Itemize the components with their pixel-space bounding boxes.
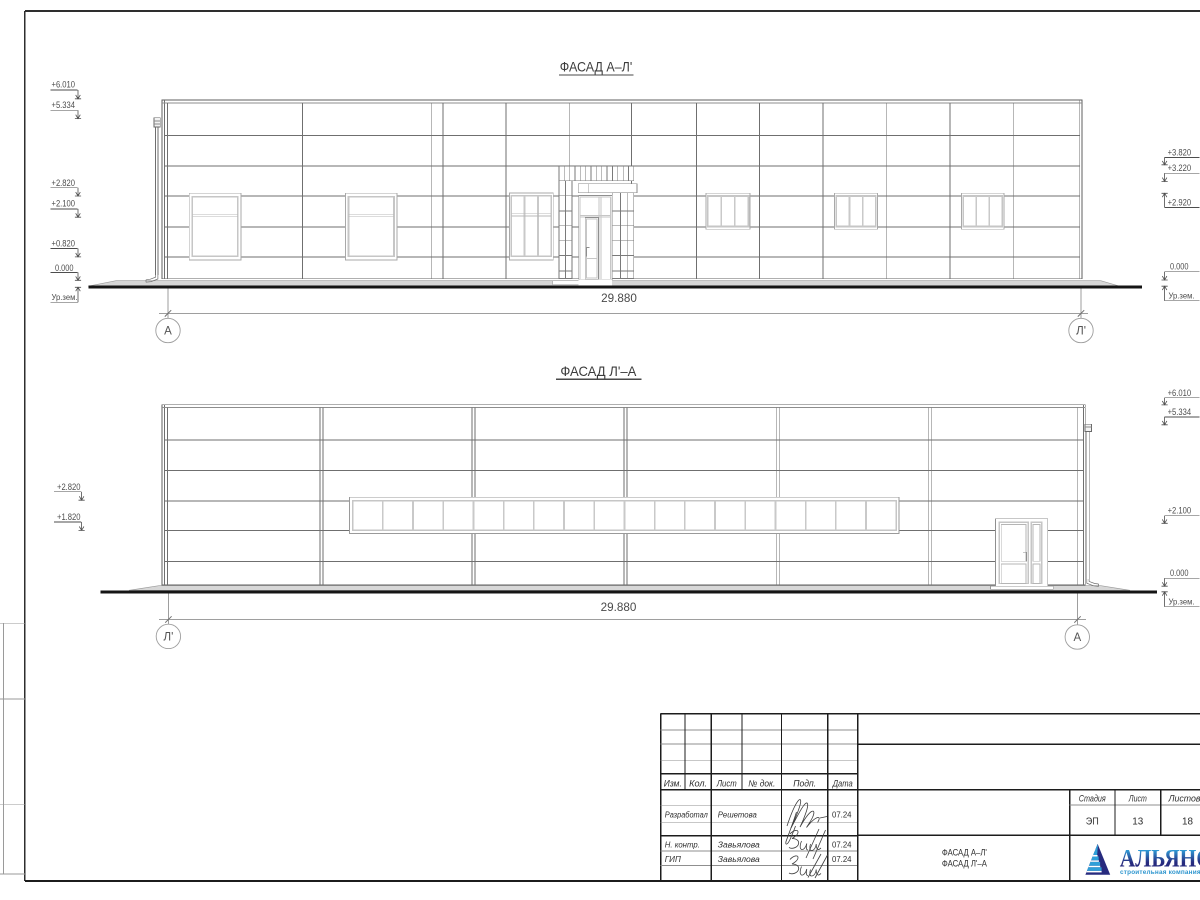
svg-text:Кол.: Кол. [689, 779, 707, 789]
svg-text:07.24: 07.24 [832, 854, 852, 864]
svg-text:+6.010: +6.010 [1168, 388, 1192, 398]
svg-text:+1.820: +1.820 [57, 512, 81, 522]
svg-text:29.880: 29.880 [601, 293, 637, 305]
svg-text:18: 18 [1182, 816, 1193, 827]
svg-text:ФАСАД Л'–А: ФАСАД Л'–А [942, 858, 987, 868]
svg-text:ГИП: ГИП [665, 854, 682, 864]
svg-text:+2.100: +2.100 [1168, 506, 1192, 516]
svg-text:А: А [1073, 632, 1081, 644]
svg-text:+2.820: +2.820 [52, 178, 76, 188]
svg-text:+3.820: +3.820 [1168, 147, 1192, 157]
svg-text:0.000: 0.000 [1170, 262, 1189, 272]
svg-text:ЭП: ЭП [1086, 816, 1099, 827]
svg-text:+2.920: +2.920 [1168, 197, 1192, 207]
svg-text:ФАСАД А–Л': ФАСАД А–Л' [560, 59, 633, 75]
svg-text:Завьялова: Завьялова [718, 854, 760, 864]
svg-text:ФАСАД А–Л': ФАСАД А–Л' [942, 847, 987, 857]
svg-text:Ур.зем.: Ур.зем. [1169, 596, 1195, 606]
svg-text:№ док.: № док. [748, 779, 775, 789]
svg-text:Ур.зем.: Ур.зем. [52, 292, 78, 302]
svg-text:Лист: Лист [716, 779, 737, 789]
svg-text:Ур.зем.: Ур.зем. [1169, 291, 1195, 301]
svg-text:Решетова: Решетова [718, 809, 757, 819]
svg-text:07.24: 07.24 [832, 810, 852, 820]
svg-text:+3.220: +3.220 [1168, 163, 1192, 173]
svg-text:+5.334: +5.334 [52, 100, 76, 110]
svg-text:Разработал: Разработал [665, 809, 708, 819]
svg-text:А: А [164, 326, 172, 338]
svg-text:Л': Л' [1076, 326, 1086, 338]
svg-text:Стадия: Стадия [1079, 793, 1106, 803]
svg-text:Лист: Лист [1128, 793, 1147, 803]
svg-text:29.880: 29.880 [601, 602, 637, 614]
svg-text:строительная компания: строительная компания [1120, 869, 1200, 876]
svg-text:+2.820: +2.820 [57, 482, 81, 492]
svg-text:+5.334: +5.334 [1168, 407, 1192, 417]
svg-text:Н. контр.: Н. контр. [665, 839, 700, 849]
svg-text:Дата: Дата [832, 779, 853, 789]
svg-text:Подп.: Подп. [793, 779, 816, 789]
svg-text:07.24: 07.24 [832, 840, 852, 850]
svg-text:Изм.: Изм. [664, 779, 682, 789]
svg-text:ФАСАД Л'–А: ФАСАД Л'–А [560, 363, 637, 379]
svg-text:0.000: 0.000 [1170, 568, 1189, 578]
svg-text:Завьялова: Завьялова [718, 839, 760, 849]
svg-text:13: 13 [1132, 816, 1143, 827]
svg-text:+0.820: +0.820 [52, 238, 76, 248]
svg-text:0.000: 0.000 [55, 263, 74, 273]
svg-text:+6.010: +6.010 [52, 80, 76, 90]
svg-text:+2.100: +2.100 [52, 199, 76, 209]
svg-text:Л': Л' [163, 632, 173, 644]
svg-text:Листов: Листов [1168, 793, 1200, 803]
